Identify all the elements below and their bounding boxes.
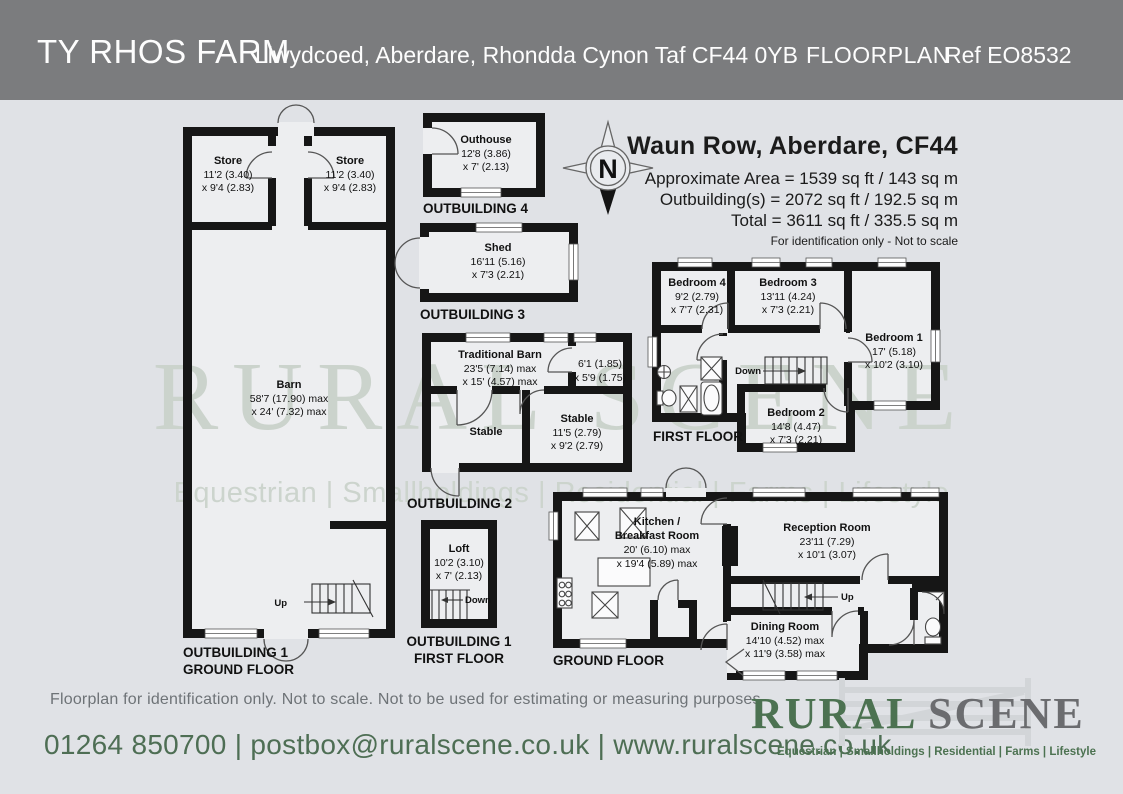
bedroom4-dim1: 9'2 (2.79)	[675, 291, 719, 303]
ob3-double-door	[395, 238, 420, 288]
outbuilding3-shed: Shed 16'11 (5.16) x 7'3 (2.21) OUTBUILDI…	[395, 223, 578, 322]
ob1-stairs-arrow	[328, 599, 336, 606]
stable-right-dim2: x 9'2 (2.79)	[551, 440, 603, 452]
outbuilding1-first-floor: Down Loft 10'2 (3.10) x 7' (2.13) OUTBUI…	[406, 525, 511, 667]
first-floor: Down Bedroom 4 9'2 (2.79) x 7'7 (2.31) B…	[648, 258, 940, 452]
store-left-dim1: 11'2 (3.40)	[203, 169, 252, 181]
ob4-door	[432, 128, 458, 154]
loft-stairs-down-label: Down	[465, 595, 491, 606]
bedroom4-name: Bedroom 4	[668, 277, 726, 289]
stable-left-name: Stable	[469, 426, 502, 438]
bathroom-door	[697, 334, 723, 360]
loft-name: Loft	[449, 543, 470, 555]
barn-dim1: 58'7 (17.90) max	[250, 393, 329, 405]
dining-hall-door	[832, 611, 858, 637]
kitchen-dim2: x 19'4 (5.89) max	[617, 558, 699, 570]
logo-rural: RURAL	[751, 689, 915, 738]
outbuilding2: Traditional Barn 23'5 (7.14) max x 15' (…	[407, 333, 628, 511]
kitchen-dim1: 20' (6.10) max	[624, 544, 692, 556]
doc-type-label: FLOORPLAN	[806, 42, 950, 69]
kitchen-french-opening	[666, 488, 706, 497]
loft-stairs-arrow	[441, 597, 448, 603]
outhouse-dim2: x 7' (2.13)	[463, 161, 509, 173]
disclaimer-text: Floorplan for identification only. Not t…	[50, 691, 761, 709]
stable-right-name: Stable	[560, 413, 593, 425]
logo-scene: SCENE	[915, 689, 1085, 738]
ob1-gf-label-1: OUTBUILDING 1	[183, 645, 288, 660]
hall-door-opening	[723, 502, 732, 524]
traditional-barn-dim2: x 15' (4.57) max	[463, 376, 539, 388]
property-address: Llwydcoed, Aberdare, Rhondda Cynon Taf C…	[255, 42, 798, 69]
rural-scene-logo: RURAL SCENE Equestrian | Smallholdings |…	[745, 672, 1090, 787]
dining-dim2: x 11'9 (3.58) max	[745, 648, 826, 660]
ground-floor: Up	[549, 468, 944, 680]
ob2-door-opening	[431, 463, 459, 473]
logo-brand: RURAL SCENE	[751, 688, 1085, 739]
store-room-dim1: 6'1 (1.85)	[578, 358, 622, 370]
reception-name: Reception Room	[783, 522, 871, 534]
header-bar: TY RHOS FARM Llwydcoed, Aberdare, Rhondd…	[0, 0, 1123, 100]
ob4-door-opening	[423, 128, 432, 154]
logo-tagline: Equestrian | Smallholdings | Residential…	[777, 746, 1096, 758]
barn-dim2: x 24' (7.32) max	[252, 406, 328, 418]
stable-right-dim1: 11'5 (2.79)	[552, 427, 601, 439]
ob3-door-opening	[419, 237, 429, 289]
reception-dim1: 23'11 (7.29)	[800, 536, 855, 548]
floorplan-page: TY RHOS FARM Llwydcoed, Aberdare, Rhondd…	[0, 0, 1123, 794]
bedroom3-door	[820, 303, 846, 329]
traditional-barn-door	[457, 390, 492, 425]
store-room-dim2: x 5'9 (1.75)	[574, 372, 626, 384]
ob4-label: OUTBUILDING 4	[423, 201, 528, 216]
bedroom4-dim2: x 7'7 (2.31)	[671, 304, 723, 316]
gf-stairs-up-label: Up	[841, 592, 854, 603]
bedroom3-name: Bedroom 3	[759, 277, 816, 289]
ob3-label: OUTBUILDING 3	[420, 307, 525, 322]
ob1-bottom-door-opening	[264, 628, 308, 639]
ob2-label: OUTBUILDING 2	[407, 496, 512, 511]
property-name: TY RHOS FARM	[37, 33, 290, 71]
first-floor-label: FIRST FLOOR	[653, 429, 743, 444]
bedroom1-dim2: x 10'2 (3.10)	[865, 359, 923, 371]
store-right-dim2: x 9'4 (2.83)	[324, 182, 376, 194]
bedroom2-dim1: 14'8 (4.47)	[771, 421, 821, 433]
outhouse-name: Outhouse	[460, 134, 511, 146]
reception-dim2: x 10'1 (3.07)	[798, 549, 856, 561]
shed-dim1: 16'11 (5.16)	[471, 256, 526, 268]
ob1-stairs-up-label: Up	[274, 598, 287, 609]
summary-outbuildings: Outbuilding(s) = 2072 sq ft / 192.5 sq m	[627, 189, 958, 210]
ob1-top-double-door	[278, 105, 314, 123]
loft-stairs	[430, 590, 470, 619]
ff-stairs	[763, 357, 827, 384]
summary-title: Waun Row, Aberdare, CF44	[627, 132, 958, 161]
loft-dim1: 10'2 (3.10)	[434, 557, 484, 569]
area-summary: Waun Row, Aberdare, CF44 Approximate Are…	[627, 132, 958, 248]
bedroom1-name: Bedroom 1	[865, 332, 922, 344]
compass-north-letter: N	[598, 154, 618, 184]
wc-toilet	[926, 618, 941, 636]
ob1-top-door-opening	[278, 122, 314, 136]
store-room-door	[548, 348, 572, 372]
bathroom-fixtures	[657, 357, 722, 415]
reference-number: Ref EO8532	[945, 42, 1072, 69]
porch-opening	[658, 600, 678, 608]
summary-approx-area: Approximate Area = 1539 sq ft / 143 sq m	[627, 168, 958, 189]
kitchen-french-doors	[666, 468, 706, 488]
bedroom1-dim1: 17' (5.18)	[872, 346, 916, 358]
dining-dim1: 14'10 (4.52) max	[746, 635, 825, 647]
kitchen-name-1: Kitchen /	[634, 516, 680, 528]
chimney-breast	[722, 526, 738, 566]
barn-name: Barn	[276, 379, 301, 391]
traditional-barn-name: Traditional Barn	[458, 349, 542, 361]
bedroom3-dim2: x 7'3 (2.21)	[762, 304, 814, 316]
bedroom2-dim2: x 7'3 (2.21)	[770, 434, 822, 446]
ff-stairs-down-label: Down	[735, 366, 761, 377]
toilet	[662, 390, 676, 406]
porch-door	[658, 580, 678, 600]
traditional-barn-dim1: 23'5 (7.14) max	[464, 363, 537, 375]
ob1-ff-label-1: OUTBUILDING 1	[406, 634, 511, 649]
shed-name: Shed	[485, 242, 512, 254]
store-left-dim2: x 9'4 (2.83)	[202, 182, 254, 194]
dining-door-opening	[727, 621, 736, 649]
outhouse-dim1: 12'8 (3.86)	[461, 148, 511, 160]
store-right-name: Store	[336, 155, 364, 167]
porch-walls	[654, 604, 693, 641]
loft-dim2: x 7' (2.13)	[436, 570, 482, 582]
bedroom2-name: Bedroom 2	[767, 407, 824, 419]
ob1-gf-label-2: GROUND FLOOR	[183, 662, 294, 677]
store-left-name: Store	[214, 155, 242, 167]
outbuilding4-outhouse: Outhouse 12'8 (3.86) x 7' (2.13) OUTBUIL…	[423, 118, 541, 217]
outbuilding1-ground-floor: Up Store 11'2 (3.40) x 9'4 (2.83) Store …	[183, 105, 391, 677]
bedroom3-dim1: 13'11 (4.24)	[761, 291, 816, 303]
wc-toilet-base	[925, 637, 941, 644]
summary-total: Total = 3611 sq ft / 335.5 sq m	[627, 210, 958, 231]
kitchen-name-2: Breakfast Room	[615, 530, 700, 542]
ob1-stairs	[304, 580, 373, 617]
summary-note: For identification only - Not to scale	[627, 234, 958, 248]
store-right-dim1: 11'2 (3.40)	[325, 169, 374, 181]
ground-floor-label: GROUND FLOOR	[553, 653, 664, 668]
reception-door	[862, 554, 888, 580]
wc-door	[889, 620, 914, 645]
shed-dim2: x 7'3 (2.21)	[472, 269, 524, 281]
ob1-ff-label-2: FIRST FLOOR	[414, 651, 504, 666]
gf-stairs-arrow	[804, 594, 812, 601]
dining-name: Dining Room	[751, 621, 820, 633]
